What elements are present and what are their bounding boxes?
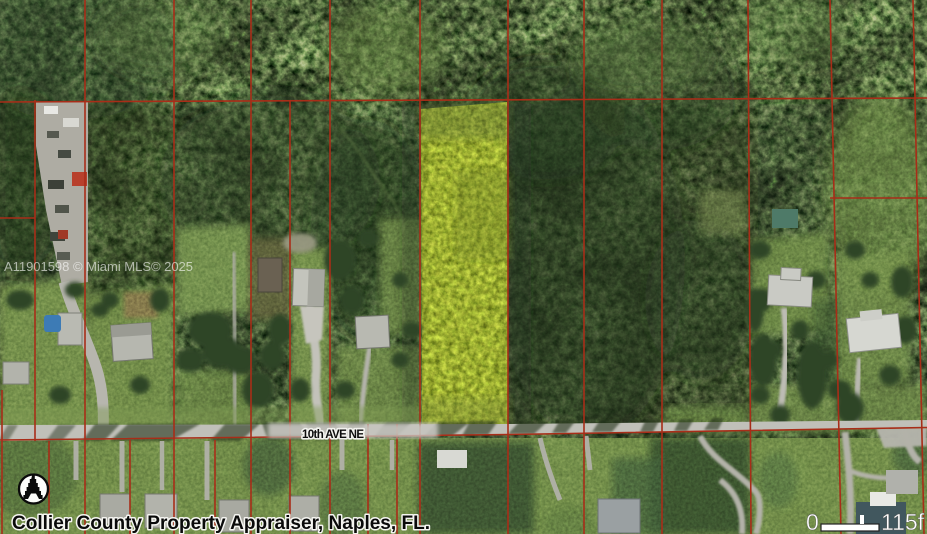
- svg-text:Collier County Property Apprai: Collier County Property Appraiser, Naple…: [12, 512, 430, 534]
- svg-text:10th AVE NE: 10th AVE NE: [302, 429, 364, 441]
- svg-text:A11901598 © Miami MLS© 2025: A11901598 © Miami MLS© 2025: [4, 259, 193, 274]
- svg-text:0: 0: [806, 509, 819, 534]
- svg-text:115f: 115f: [881, 509, 925, 534]
